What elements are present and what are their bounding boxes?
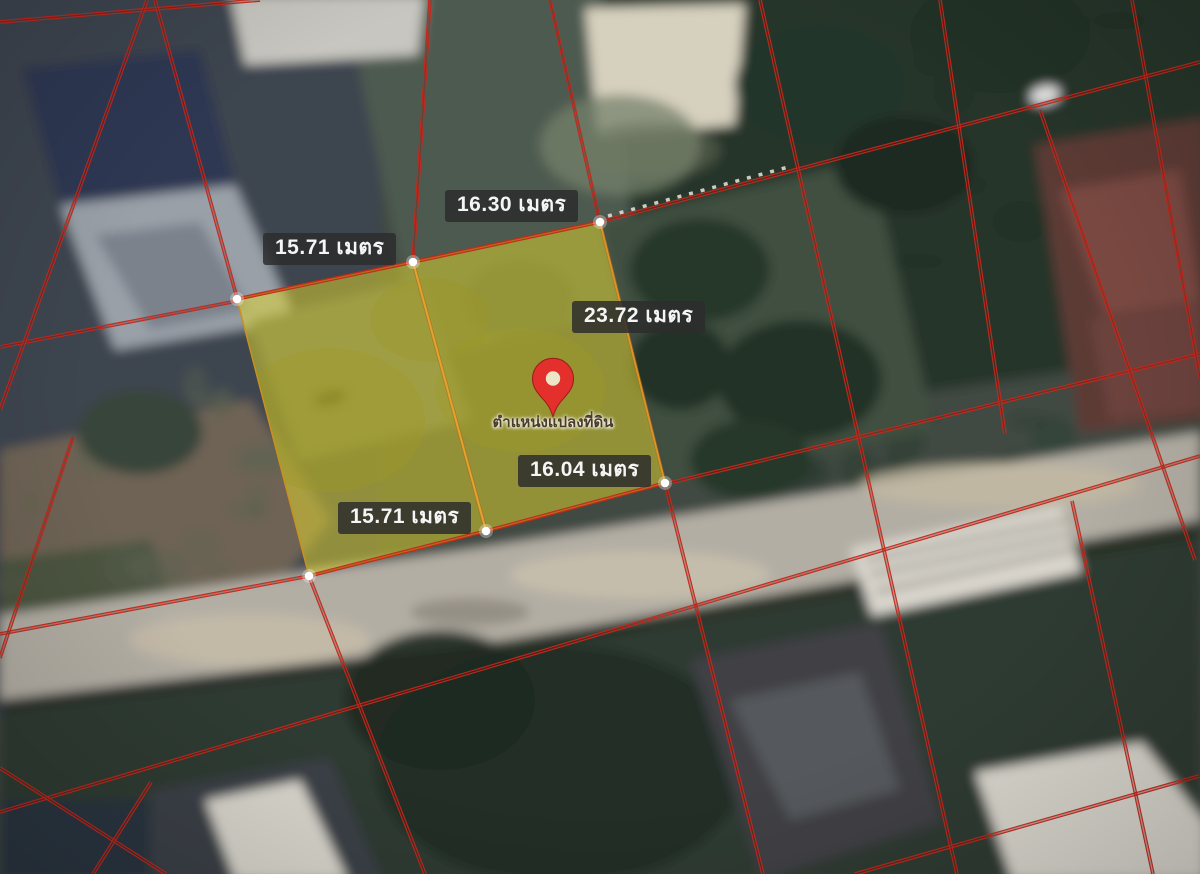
measurement-label-bottom: 16.04 เมตร [518,455,651,487]
satellite-canvas [0,0,1200,874]
pin-label: ตำแหน่งแปลงที่ดิน [493,410,614,434]
measurement-label-lower-left: 15.71 เมตร [338,502,471,534]
measurement-label-top: 16.30 เมตร [445,190,578,222]
cadastral-map-image: 15.71 เมตร 16.30 เมตร 23.72 เมตร 16.04 เ… [0,0,1200,874]
location-pin-icon [518,356,588,418]
measurement-label-right: 23.72 เมตร [572,301,705,333]
measurement-label-upper-left: 15.71 เมตร [263,233,396,265]
